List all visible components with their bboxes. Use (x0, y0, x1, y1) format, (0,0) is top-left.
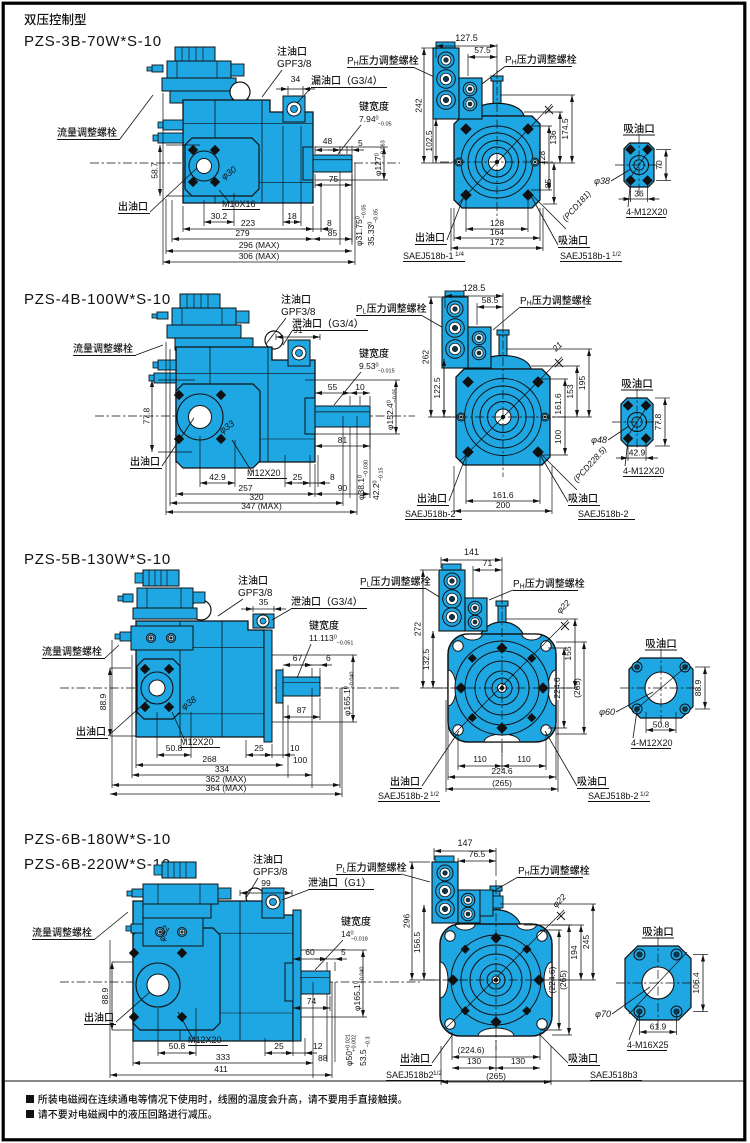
svg-text:128: 128 (537, 151, 547, 165)
svg-text:GPF3/8: GPF3/8 (253, 867, 288, 878)
svg-text:−0.063: −0.063 (381, 140, 387, 157)
svg-text:流量调整螺栓: 流量调整螺栓 (32, 924, 92, 939)
svg-text:364 (MAX): 364 (MAX) (206, 783, 247, 793)
svg-text:φ152.40: φ152.40 (385, 400, 395, 430)
svg-text:PH压力调整螺栓: PH压力调整螺栓 (518, 862, 590, 879)
svg-text:242: 242 (414, 98, 424, 112)
svg-text:PZS-3B-70W*S-10: PZS-3B-70W*S-10 (24, 33, 162, 50)
svg-text:5: 5 (341, 947, 346, 957)
svg-text:泄油口（G3/4）: 泄油口（G3/4） (291, 593, 363, 608)
svg-text:411: 411 (214, 1064, 228, 1074)
svg-text:注油口: 注油口 (277, 43, 307, 58)
svg-text:−0.051: −0.051 (337, 641, 354, 647)
svg-text:132.5: 132.5 (421, 649, 431, 671)
svg-text:53.5: 53.5 (358, 1049, 368, 1066)
svg-text:(265): (265) (572, 678, 582, 698)
svg-text:30.2: 30.2 (211, 211, 228, 221)
svg-text:吸油口: 吸油口 (623, 121, 655, 136)
svg-text:245: 245 (581, 935, 591, 949)
svg-text:74: 74 (307, 996, 317, 1006)
svg-text:110: 110 (473, 754, 487, 764)
svg-text:58.7: 58.7 (150, 162, 160, 179)
svg-text:键宽度: 键宽度 (359, 345, 389, 360)
svg-text:35: 35 (259, 597, 269, 607)
svg-text:91: 91 (293, 325, 303, 335)
svg-text:122.5: 122.5 (432, 377, 442, 399)
svg-text:347 (MAX): 347 (MAX) (241, 501, 282, 511)
svg-text:PZS-5B-130W*S-10: PZS-5B-130W*S-10 (24, 551, 171, 568)
svg-text:50.8: 50.8 (166, 743, 183, 753)
svg-text:81: 81 (338, 435, 348, 445)
svg-text:出油口: 出油口 (130, 453, 160, 468)
svg-text:PH压力调整螺栓: PH压力调整螺栓 (347, 52, 419, 69)
svg-text:34: 34 (291, 74, 301, 84)
svg-text:128.5: 128.5 (463, 283, 486, 293)
svg-text:+0.002: +0.002 (352, 1035, 358, 1052)
svg-text:泄油口（G3/4）: 泄油口（G3/4） (292, 315, 364, 330)
svg-text:296 (MAX): 296 (MAX) (239, 240, 280, 250)
svg-text:泄油口（G1）: 泄油口（G1） (308, 874, 371, 889)
svg-text:306 (MAX): 306 (MAX) (239, 251, 280, 261)
svg-text:(265): (265) (558, 970, 568, 990)
svg-text:4-M12X20: 4-M12X20 (631, 738, 673, 748)
svg-text:161.6: 161.6 (492, 490, 514, 500)
svg-text:99: 99 (261, 878, 271, 888)
svg-text:φ31.750: φ31.750 (354, 216, 364, 246)
svg-text:φ38: φ38 (594, 176, 610, 186)
svg-text:1/2: 1/2 (640, 791, 649, 798)
svg-text:224.6: 224.6 (491, 766, 513, 776)
svg-text:PH压力调整螺栓: PH压力调整螺栓 (513, 575, 585, 592)
svg-text:85: 85 (543, 179, 553, 189)
svg-text:75: 75 (329, 174, 339, 184)
svg-text:吸油口: 吸油口 (558, 232, 588, 247)
svg-text:1/2: 1/2 (433, 1070, 442, 1077)
svg-text:5: 5 (358, 138, 363, 148)
svg-text:25: 25 (274, 1041, 284, 1051)
svg-text:PL压力调整螺栓: PL压力调整螺栓 (360, 573, 431, 590)
svg-text:102.5: 102.5 (424, 130, 434, 152)
svg-text:吸油口: 吸油口 (568, 1050, 598, 1065)
svg-text:−0.3: −0.3 (366, 1036, 372, 1047)
svg-text:279: 279 (235, 228, 249, 238)
svg-text:键宽度: 键宽度 (359, 98, 389, 113)
svg-text:36: 36 (634, 189, 644, 199)
svg-text:224.6: 224.6 (552, 677, 562, 699)
svg-text:61.9: 61.9 (650, 1022, 667, 1032)
svg-text:−0.05: −0.05 (374, 209, 380, 223)
svg-text:18: 18 (287, 211, 297, 221)
svg-text:吸油口: 吸油口 (577, 773, 607, 788)
svg-text:6: 6 (326, 653, 331, 663)
svg-text:334: 334 (215, 764, 229, 774)
svg-text:SAEJ518b2: SAEJ518b2 (386, 1070, 434, 1080)
svg-text:60: 60 (305, 947, 315, 957)
svg-text:172: 172 (490, 237, 504, 247)
svg-text:PH压力调整螺栓: PH压力调整螺栓 (505, 51, 577, 68)
svg-text:PZS-4B-100W*S-10: PZS-4B-100W*S-10 (24, 291, 171, 308)
svg-text:153: 153 (565, 384, 575, 398)
svg-text:PZS-6B-220W*S-10: PZS-6B-220W*S-10 (24, 856, 171, 873)
svg-text:50.8: 50.8 (653, 720, 670, 730)
svg-text:130: 130 (467, 1056, 481, 1066)
svg-text:SAEJ518b-2: SAEJ518b-2 (405, 509, 456, 519)
svg-text:25: 25 (254, 743, 264, 753)
svg-text:1/2: 1/2 (612, 251, 621, 258)
svg-text:161.6: 161.6 (553, 393, 563, 415)
svg-text:出油口: 出油口 (118, 198, 148, 213)
svg-text:PH压力调整螺栓: PH压力调整螺栓 (520, 292, 592, 309)
svg-text:SAEJ518b-2: SAEJ518b-2 (378, 791, 429, 801)
svg-text:■ 所装电磁阀在连续通电等情况下使用时，线圈的温度会升高，请: ■ 所装电磁阀在连续通电等情况下使用时，线圈的温度会升高，请不要用手直接触摸。 (25, 1091, 408, 1106)
svg-text:100: 100 (293, 755, 307, 765)
svg-text:200: 200 (496, 500, 510, 510)
svg-text:SAEJ518b-2: SAEJ518b-2 (578, 509, 629, 519)
svg-text:35.330: 35.330 (366, 222, 376, 246)
svg-text:SAEJ518b3: SAEJ518b3 (590, 1070, 638, 1080)
svg-text:141: 141 (464, 547, 479, 557)
svg-text:SAEJ518b-1: SAEJ518b-1 (560, 251, 611, 261)
svg-text:100: 100 (553, 430, 563, 444)
svg-text:出油口: 出油口 (415, 229, 445, 244)
svg-text:57.5: 57.5 (474, 45, 491, 55)
svg-text:−0.030: −0.030 (364, 460, 370, 477)
svg-text:(265): (265) (492, 778, 512, 788)
svg-text:−0.040: −0.040 (350, 671, 356, 688)
svg-text:195: 195 (577, 376, 587, 390)
svg-text:■ 请不要对电磁阀中的液压回路进行减压。: ■ 请不要对电磁阀中的液压回路进行减压。 (25, 1106, 218, 1121)
svg-text:127.5: 127.5 (455, 33, 478, 43)
svg-text:−0.05: −0.05 (393, 389, 399, 403)
svg-text:85: 85 (328, 228, 338, 238)
svg-text:8: 8 (330, 472, 335, 482)
svg-text:4-M12X20: 4-M12X20 (623, 466, 665, 476)
svg-text:注油口: 注油口 (253, 851, 283, 866)
svg-text:88.9: 88.9 (693, 679, 703, 696)
svg-text:M10X16: M10X16 (222, 199, 256, 209)
svg-text:42.9: 42.9 (629, 448, 646, 458)
svg-text:φ48: φ48 (591, 435, 607, 445)
svg-text:58.5: 58.5 (482, 295, 499, 305)
svg-text:268: 268 (202, 754, 216, 764)
svg-text:4-M16X25: 4-M16X25 (627, 1040, 669, 1050)
svg-text:出油口: 出油口 (76, 723, 106, 738)
svg-text:−0.05: −0.05 (378, 122, 392, 128)
svg-text:42.9: 42.9 (209, 472, 226, 482)
svg-text:注油口: 注油口 (281, 291, 311, 306)
svg-text:88.9: 88.9 (98, 693, 108, 710)
svg-text:−0.018: −0.018 (351, 937, 368, 943)
svg-text:PZS-6B-180W*S-10: PZS-6B-180W*S-10 (24, 831, 171, 848)
svg-text:130: 130 (511, 1056, 525, 1066)
svg-text:φ165.10: φ165.10 (342, 686, 352, 716)
svg-text:77.8: 77.8 (653, 413, 663, 430)
svg-text:67: 67 (293, 653, 303, 663)
svg-text:296: 296 (402, 914, 412, 928)
svg-text:223: 223 (241, 218, 255, 228)
svg-text:吸油口: 吸油口 (568, 490, 598, 505)
svg-text:吸油口: 吸油口 (621, 376, 653, 391)
svg-text:PL压力调整螺栓: PL压力调整螺栓 (336, 859, 407, 876)
svg-text:流量调整螺栓: 流量调整螺栓 (42, 643, 102, 658)
svg-text:键宽度: 键宽度 (341, 913, 371, 928)
svg-text:25: 25 (293, 472, 303, 482)
svg-text:76.5: 76.5 (469, 849, 486, 859)
svg-text:PL压力调整螺栓: PL压力调整螺栓 (356, 300, 427, 317)
svg-text:(224.6): (224.6) (458, 1045, 485, 1055)
svg-text:注油口: 注油口 (238, 572, 268, 587)
svg-text:−0.05: −0.05 (362, 205, 368, 219)
svg-text:194: 194 (569, 945, 579, 959)
svg-text:88: 88 (318, 1053, 328, 1063)
svg-text:174.5: 174.5 (560, 118, 570, 140)
svg-text:−0.015: −0.015 (378, 369, 395, 375)
svg-text:48: 48 (323, 136, 333, 146)
svg-text:11.1130: 11.1130 (309, 633, 337, 643)
svg-text:262: 262 (421, 350, 431, 364)
svg-text:147: 147 (457, 838, 472, 848)
svg-text:出油口: 出油口 (400, 1050, 430, 1065)
svg-text:70: 70 (654, 160, 664, 170)
svg-text:M12X20: M12X20 (247, 468, 281, 478)
svg-text:4-M12X20: 4-M12X20 (626, 207, 668, 217)
svg-text:164: 164 (490, 227, 504, 237)
svg-text:272: 272 (413, 622, 423, 636)
svg-text:10: 10 (355, 382, 365, 392)
svg-text:SAEJ518b-2: SAEJ518b-2 (588, 791, 639, 801)
svg-text:SAEJ518b-1: SAEJ518b-1 (403, 251, 454, 261)
svg-text:110: 110 (517, 754, 531, 764)
svg-text:(224.6): (224.6) (547, 966, 557, 993)
svg-text:出油口: 出油口 (84, 1009, 114, 1024)
svg-text:漏油口（G3/4）: 漏油口（G3/4） (311, 72, 383, 87)
svg-text:吸油口: 吸油口 (642, 924, 674, 939)
svg-text:M12X20: M12X20 (188, 1035, 222, 1045)
svg-text:87: 87 (297, 705, 307, 715)
svg-text:156.5: 156.5 (412, 932, 422, 954)
svg-text:50.8: 50.8 (169, 1041, 186, 1051)
svg-text:出油口: 出油口 (390, 773, 420, 788)
svg-text:333: 333 (216, 1052, 230, 1062)
svg-text:流量调整螺栓: 流量调整螺栓 (57, 124, 117, 139)
svg-text:φ60: φ60 (599, 707, 615, 717)
svg-text:1/4: 1/4 (455, 251, 464, 258)
svg-text:键宽度: 键宽度 (309, 617, 339, 632)
svg-text:8: 8 (327, 218, 332, 228)
svg-text:106.4: 106.4 (691, 972, 701, 994)
svg-text:−0.15: −0.15 (379, 467, 385, 481)
svg-text:10: 10 (290, 743, 300, 753)
svg-text:φ70: φ70 (595, 1009, 611, 1019)
svg-text:90: 90 (338, 483, 348, 493)
svg-text:M12X20: M12X20 (180, 737, 214, 747)
svg-text:(265): (265) (486, 1071, 506, 1081)
svg-text:φ165.10: φ165.10 (352, 981, 362, 1011)
svg-text:12: 12 (313, 1041, 323, 1051)
svg-text:71: 71 (483, 558, 493, 568)
svg-text:φ38.10: φ38.10 (356, 475, 366, 500)
svg-text:55: 55 (328, 382, 338, 392)
svg-text:出油口: 出油口 (417, 490, 447, 505)
svg-text:流量调整螺栓: 流量调整螺栓 (73, 340, 133, 355)
svg-text:1/2: 1/2 (430, 791, 439, 798)
svg-text:−0.040: −0.040 (360, 966, 366, 983)
svg-text:双压控制型: 双压控制型 (24, 9, 87, 28)
svg-text:吸油口: 吸油口 (645, 636, 677, 651)
svg-text:77.8: 77.8 (142, 407, 152, 424)
svg-text:88.9: 88.9 (100, 987, 110, 1004)
svg-text:GPF3/8: GPF3/8 (277, 59, 312, 70)
